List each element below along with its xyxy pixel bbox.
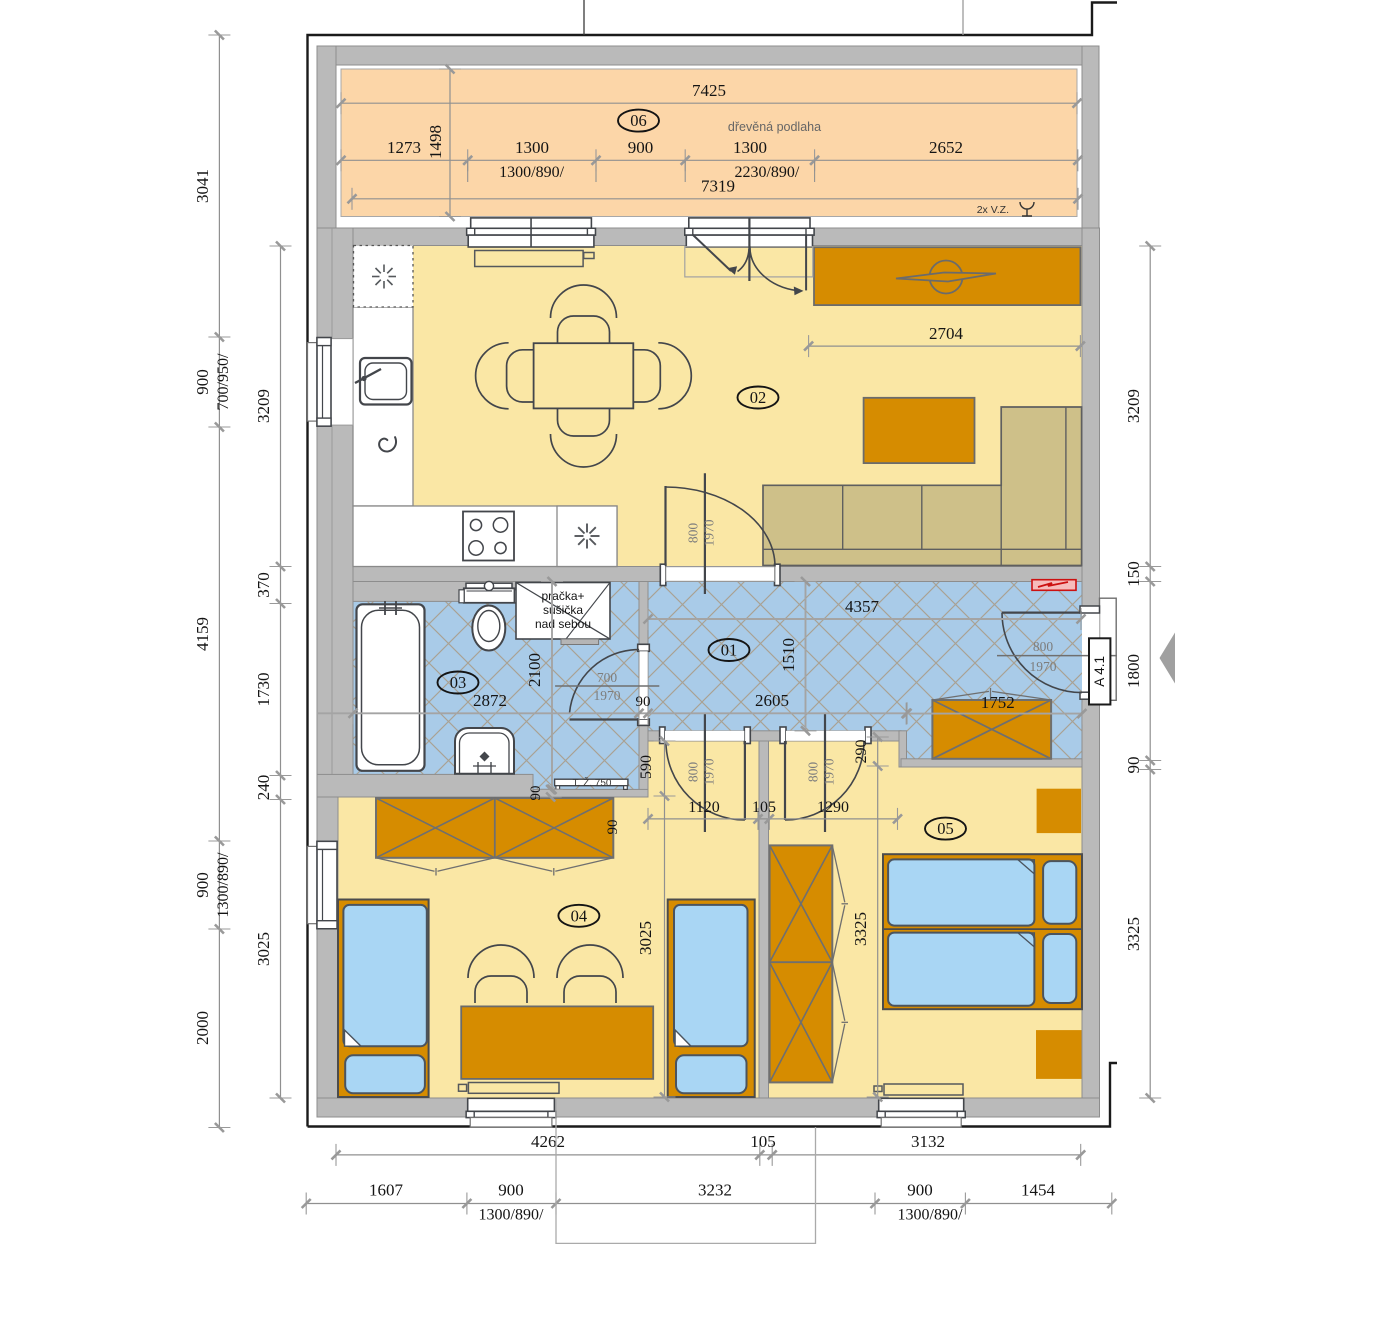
svg-text:90: 90	[1124, 757, 1143, 774]
svg-text:1752: 1752	[981, 693, 1015, 712]
svg-text:150: 150	[1124, 561, 1143, 587]
svg-text:1300/890/: 1300/890/	[479, 1207, 544, 1224]
svg-text:2652: 2652	[929, 138, 963, 157]
svg-text:2x V.Z.: 2x V.Z.	[977, 204, 1009, 216]
svg-text:1290: 1290	[817, 799, 849, 816]
svg-text:290: 290	[853, 740, 870, 764]
svg-text:T. Ž. 750: T. Ž. 750	[573, 776, 612, 789]
svg-text:3325: 3325	[851, 912, 870, 946]
svg-text:3325: 3325	[1124, 917, 1143, 951]
svg-text:1730: 1730	[254, 673, 273, 707]
svg-text:1970: 1970	[702, 519, 717, 546]
svg-text:900: 900	[498, 1181, 524, 1200]
svg-text:590: 590	[638, 755, 655, 779]
svg-text:90: 90	[636, 694, 651, 710]
svg-text:2872: 2872	[473, 691, 507, 710]
svg-text:3232: 3232	[698, 1181, 732, 1200]
svg-text:800: 800	[806, 762, 821, 783]
svg-text:7319: 7319	[701, 177, 735, 196]
svg-text:900: 900	[193, 369, 212, 395]
svg-text:1510: 1510	[779, 638, 798, 672]
svg-text:1300: 1300	[733, 138, 767, 157]
svg-text:01: 01	[721, 641, 738, 660]
svg-text:800: 800	[686, 762, 701, 783]
svg-text:4262: 4262	[531, 1132, 565, 1151]
svg-text:4159: 4159	[193, 617, 212, 651]
svg-text:90: 90	[605, 820, 621, 835]
svg-text:A 4.1: A 4.1	[1092, 656, 1107, 687]
svg-text:370: 370	[254, 572, 273, 598]
svg-text:1300: 1300	[515, 138, 549, 157]
svg-text:105: 105	[750, 1132, 776, 1151]
svg-text:900: 900	[628, 138, 654, 157]
svg-text:03: 03	[450, 673, 467, 692]
svg-text:05: 05	[937, 819, 954, 838]
svg-text:700: 700	[597, 670, 618, 685]
svg-text:04: 04	[571, 906, 588, 925]
svg-text:900: 900	[193, 872, 212, 898]
svg-text:1970: 1970	[1030, 659, 1057, 674]
svg-text:3025: 3025	[636, 921, 655, 955]
svg-text:3132: 3132	[911, 1132, 945, 1151]
svg-text:3209: 3209	[1124, 389, 1143, 423]
svg-text:1970: 1970	[702, 758, 717, 785]
svg-text:700/950/: 700/950/	[215, 353, 232, 410]
svg-text:1300/890/: 1300/890/	[215, 852, 232, 917]
svg-text:900: 900	[907, 1181, 933, 1200]
svg-text:1800: 1800	[1124, 654, 1143, 688]
svg-text:1970: 1970	[822, 758, 837, 785]
svg-text:2230/890/: 2230/890/	[734, 164, 799, 181]
svg-text:pračka+: pračka+	[541, 589, 584, 603]
svg-text:1454: 1454	[1021, 1181, 1056, 1200]
svg-text:1273: 1273	[387, 138, 421, 157]
svg-text:90: 90	[528, 786, 544, 801]
svg-text:4357: 4357	[845, 597, 880, 616]
svg-text:105: 105	[752, 799, 776, 816]
svg-text:1970: 1970	[594, 688, 621, 703]
svg-text:240: 240	[254, 775, 273, 801]
svg-text:02: 02	[750, 388, 767, 407]
svg-text:1300/890/: 1300/890/	[898, 1207, 963, 1224]
svg-text:sušička: sušička	[543, 603, 583, 617]
svg-text:7425: 7425	[692, 81, 726, 100]
svg-text:1300/890/: 1300/890/	[499, 164, 564, 181]
svg-text:1607: 1607	[369, 1181, 404, 1200]
svg-text:3025: 3025	[254, 932, 273, 966]
svg-text:06: 06	[630, 111, 647, 130]
svg-text:1498: 1498	[426, 125, 445, 159]
svg-text:1120: 1120	[688, 799, 719, 816]
svg-text:800: 800	[686, 523, 701, 544]
svg-text:3209: 3209	[254, 389, 273, 423]
svg-text:dřevěná podlaha: dřevěná podlaha	[728, 120, 821, 134]
svg-text:3041: 3041	[193, 169, 212, 203]
svg-text:2605: 2605	[755, 691, 789, 710]
svg-text:2100: 2100	[525, 653, 544, 687]
svg-text:2000: 2000	[193, 1011, 212, 1045]
svg-text:nad sebou: nad sebou	[535, 617, 591, 631]
svg-text:800: 800	[1033, 639, 1054, 654]
svg-text:2704: 2704	[929, 324, 964, 343]
